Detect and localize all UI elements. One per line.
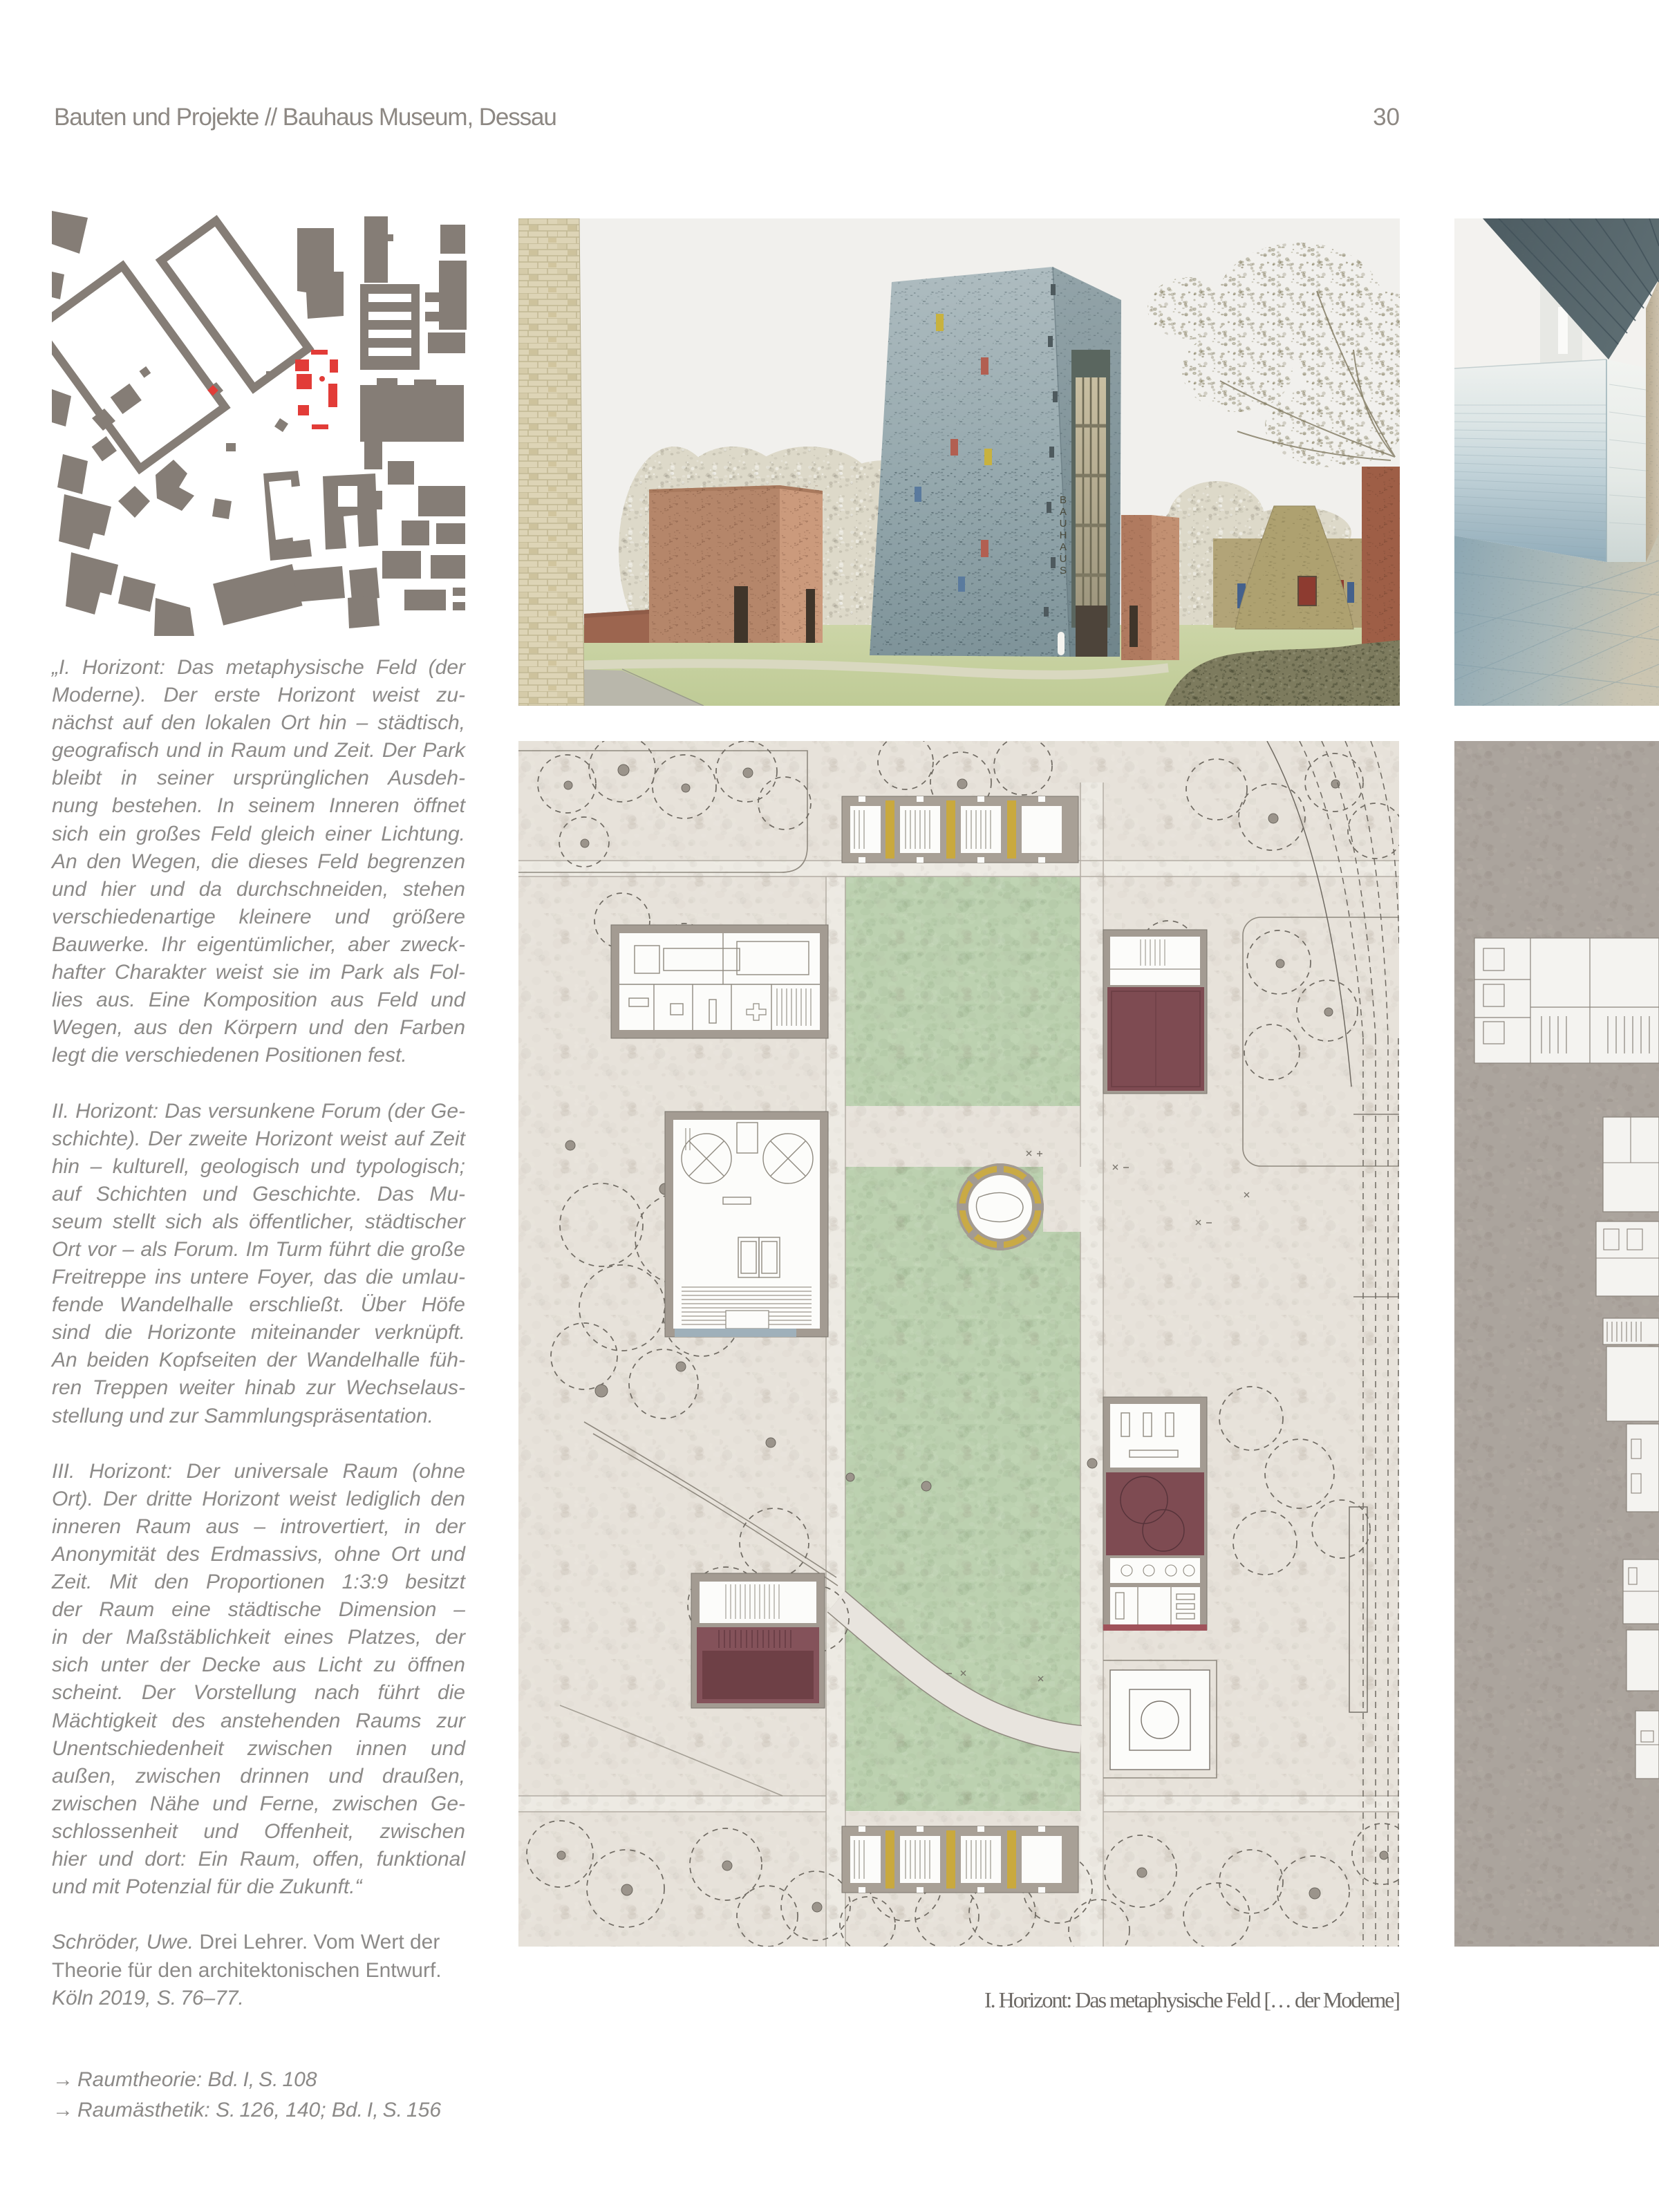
svg-text:U: U (1060, 518, 1067, 529)
svg-text:H: H (1060, 529, 1067, 541)
svg-text:A: A (1060, 541, 1067, 553)
svg-text:S: S (1060, 565, 1067, 577)
svg-text:U: U (1060, 553, 1067, 565)
svg-text:A: A (1060, 506, 1067, 518)
svg-text:B: B (1060, 494, 1067, 506)
